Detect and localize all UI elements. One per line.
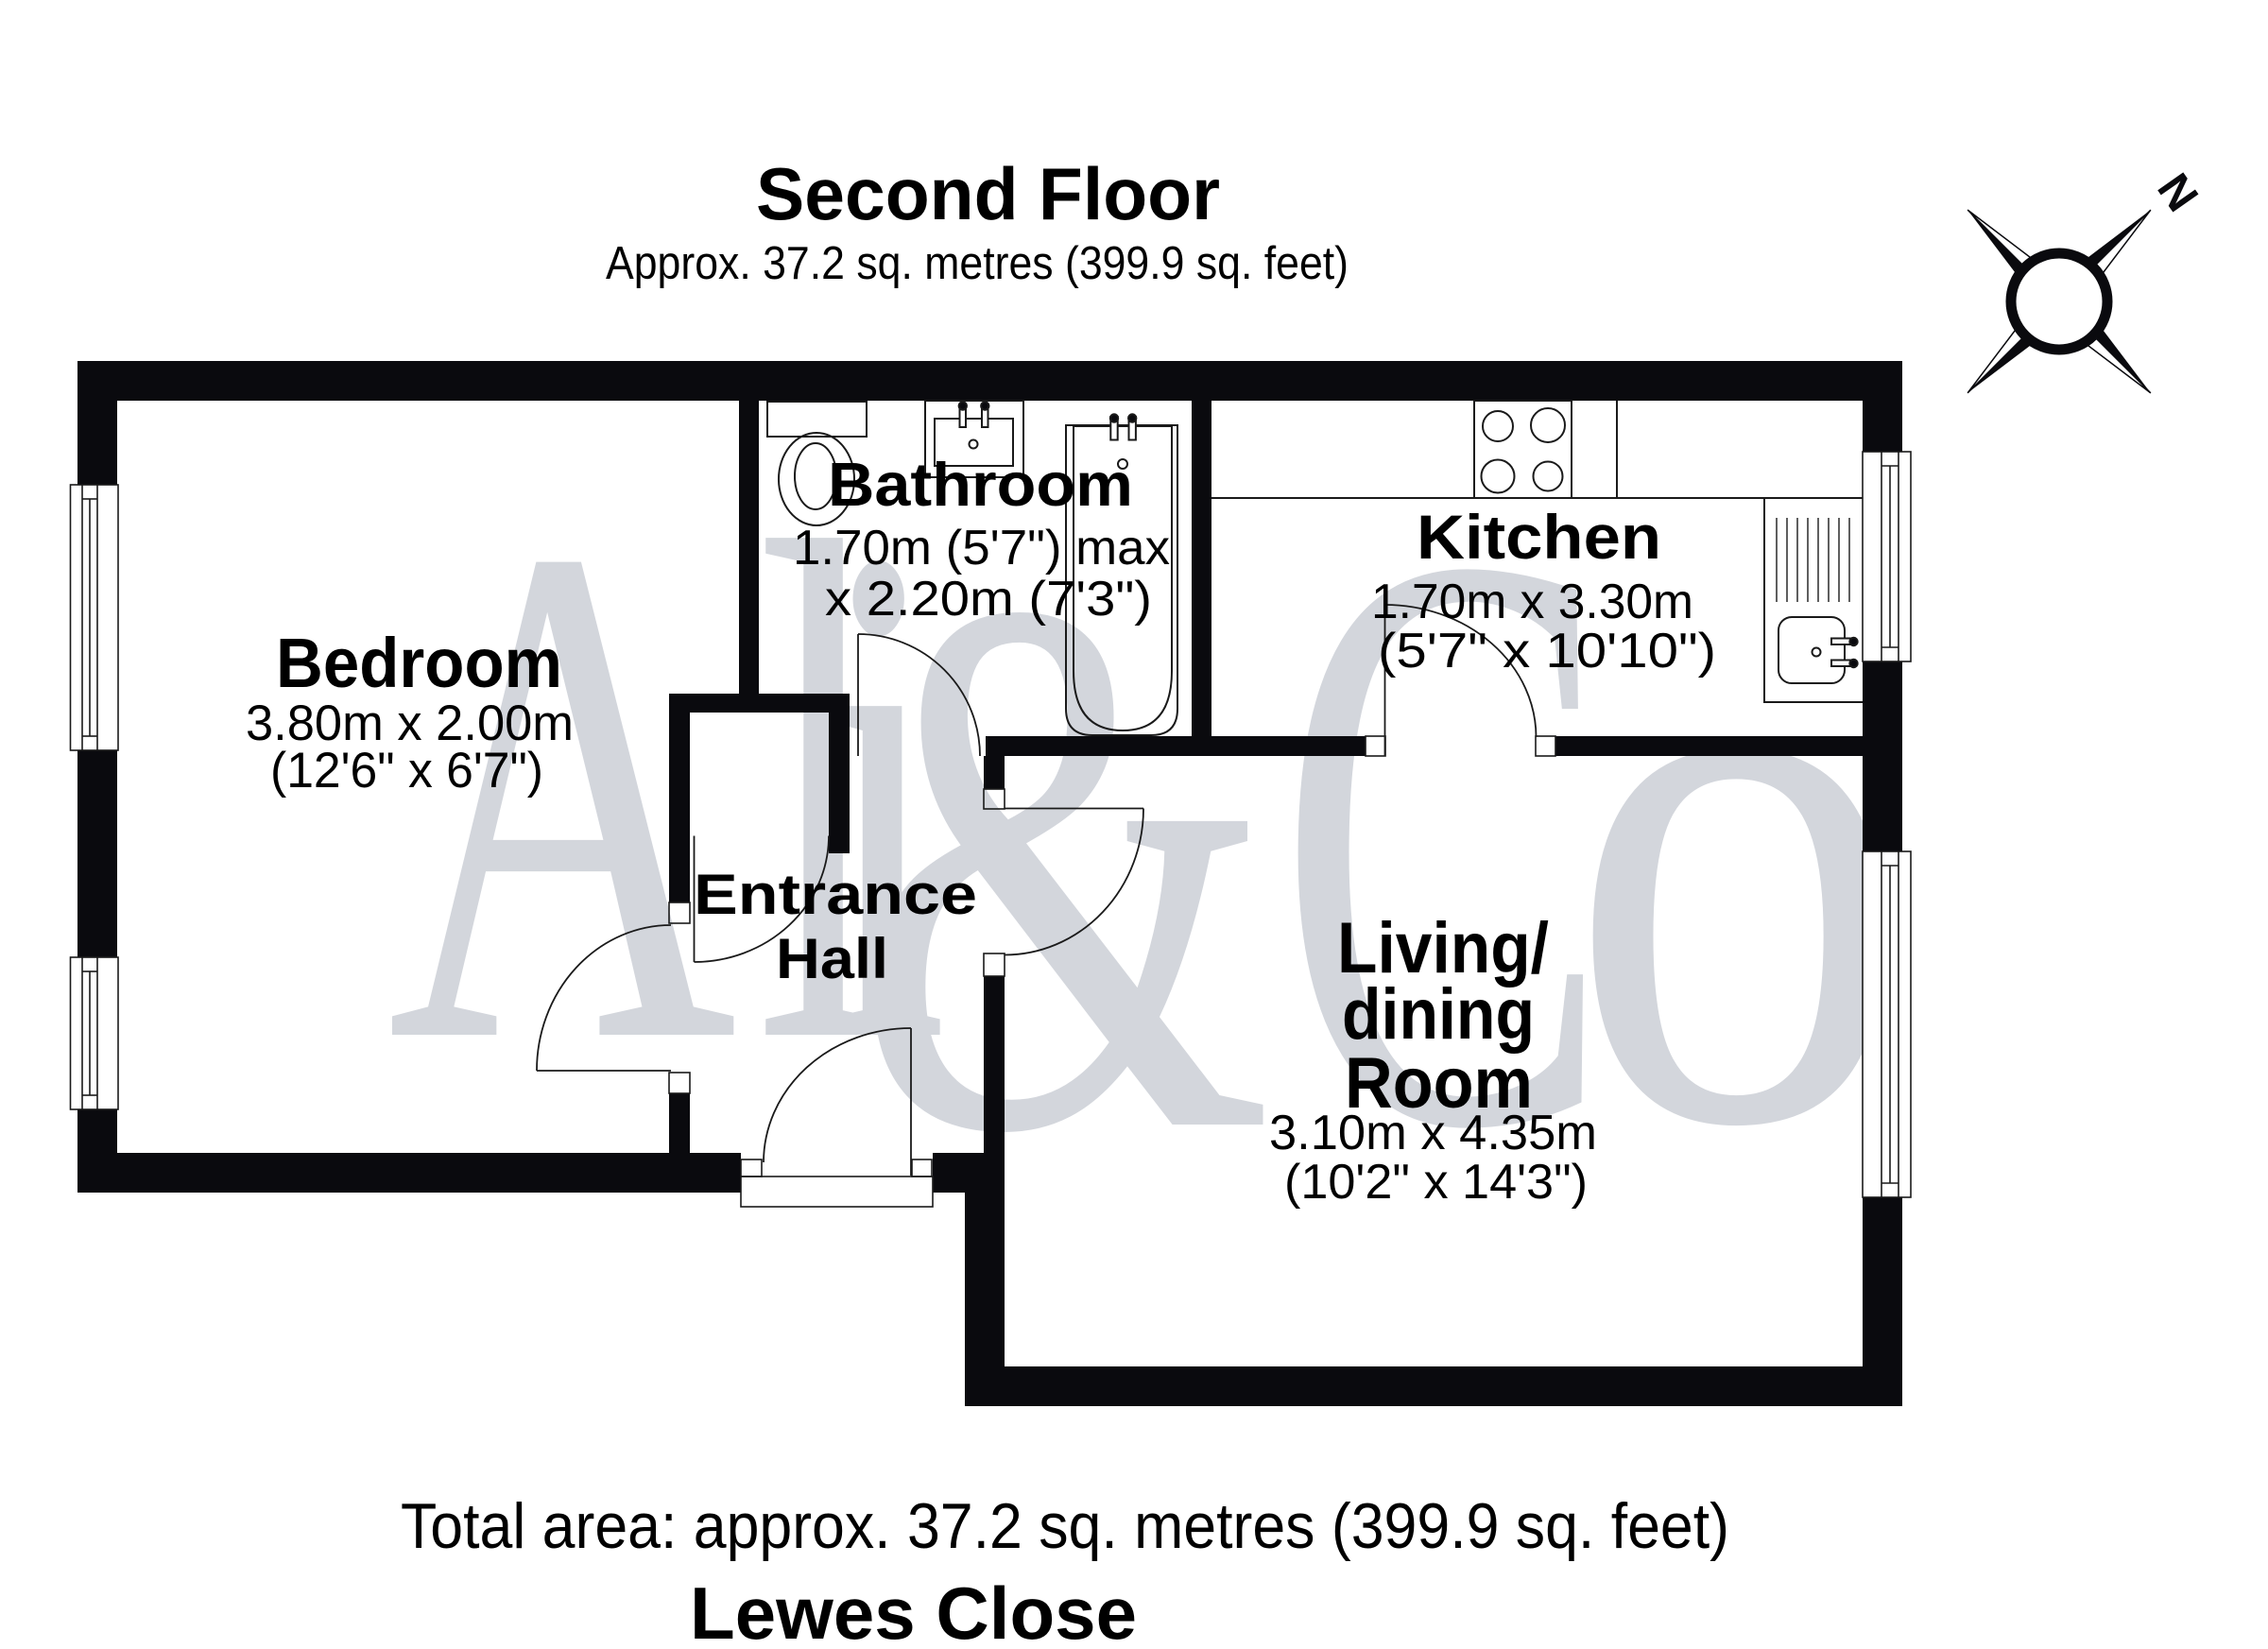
svg-text:Kitchen: Kitchen (1417, 502, 1661, 572)
svg-text:Bedroom: Bedroom (276, 624, 562, 702)
svg-text:Entrance: Entrance (694, 863, 977, 926)
svg-text:(5'7" x 10'10"): (5'7" x 10'10") (1378, 624, 1716, 678)
svg-text:1.70m (5'7") max: 1.70m (5'7") max (793, 521, 1170, 575)
svg-text:x 2.20m (7'3"): x 2.20m (7'3") (825, 572, 1152, 627)
svg-text:Second Floor: Second Floor (756, 152, 1220, 235)
svg-text:Total area: approx. 37.2 sq. m: Total area: approx. 37.2 sq. metres (399… (401, 1490, 1729, 1562)
svg-text:(12'6" x 6'7"): (12'6" x 6'7") (270, 743, 543, 799)
svg-text:Hall: Hall (776, 927, 888, 990)
svg-text:1.70m x 3.30m: 1.70m x 3.30m (1371, 575, 1693, 629)
svg-text:Lewes Close: Lewes Close (690, 1572, 1137, 1649)
svg-text:(10'2" x 14'3"): (10'2" x 14'3") (1284, 1155, 1588, 1210)
svg-text:Bathroom: Bathroom (828, 450, 1133, 519)
svg-text:Approx. 37.2 sq. metres (399.9: Approx. 37.2 sq. metres (399.9 sq. feet) (606, 238, 1349, 289)
svg-text:3.10m x 4.35m: 3.10m x 4.35m (1269, 1106, 1597, 1160)
